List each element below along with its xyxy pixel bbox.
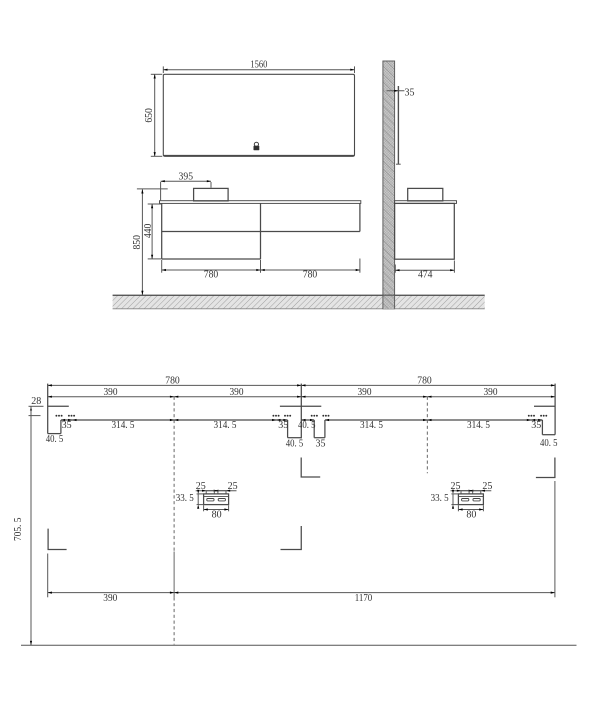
svg-text:314. 5: 314. 5 <box>467 420 490 431</box>
svg-text:780: 780 <box>303 269 318 280</box>
svg-text:314. 5: 314. 5 <box>112 420 135 431</box>
svg-text:780: 780 <box>204 269 219 280</box>
svg-text:314. 5: 314. 5 <box>214 420 237 431</box>
svg-text:25: 25 <box>482 481 492 492</box>
svg-text:395: 395 <box>179 172 194 183</box>
svg-text:25: 25 <box>451 481 461 492</box>
svg-text:40. 5: 40. 5 <box>46 434 64 445</box>
svg-text:1170: 1170 <box>355 593 373 604</box>
svg-text:390: 390 <box>230 387 244 398</box>
svg-text:650: 650 <box>144 108 155 123</box>
svg-text:35: 35 <box>278 420 288 431</box>
svg-text:390: 390 <box>358 387 372 398</box>
svg-text:705. 5: 705. 5 <box>13 518 24 542</box>
svg-text:35: 35 <box>62 420 72 431</box>
svg-text:35: 35 <box>531 420 541 431</box>
svg-text:80: 80 <box>466 509 476 520</box>
svg-text:390: 390 <box>103 593 117 604</box>
svg-text:390: 390 <box>104 387 118 398</box>
svg-text:35: 35 <box>405 88 415 99</box>
svg-text:40. 5: 40. 5 <box>540 438 558 449</box>
svg-text:440: 440 <box>143 224 154 239</box>
svg-text:28: 28 <box>31 396 41 407</box>
svg-text:33. 5: 33. 5 <box>176 493 194 504</box>
svg-text:35: 35 <box>316 439 326 450</box>
svg-text:850: 850 <box>132 235 143 250</box>
svg-text:25: 25 <box>196 481 206 492</box>
svg-text:780: 780 <box>417 375 432 386</box>
svg-text:1560: 1560 <box>250 59 267 70</box>
svg-text:314. 5: 314. 5 <box>360 420 383 431</box>
svg-text:780: 780 <box>165 375 180 386</box>
svg-text:390: 390 <box>484 387 498 398</box>
svg-text:80: 80 <box>212 509 222 520</box>
svg-text:40. 5: 40. 5 <box>286 439 304 450</box>
svg-text:25: 25 <box>228 481 238 492</box>
svg-text:33. 5: 33. 5 <box>431 493 449 504</box>
svg-text:474: 474 <box>418 270 433 281</box>
svg-text:40. 5: 40. 5 <box>298 420 316 431</box>
